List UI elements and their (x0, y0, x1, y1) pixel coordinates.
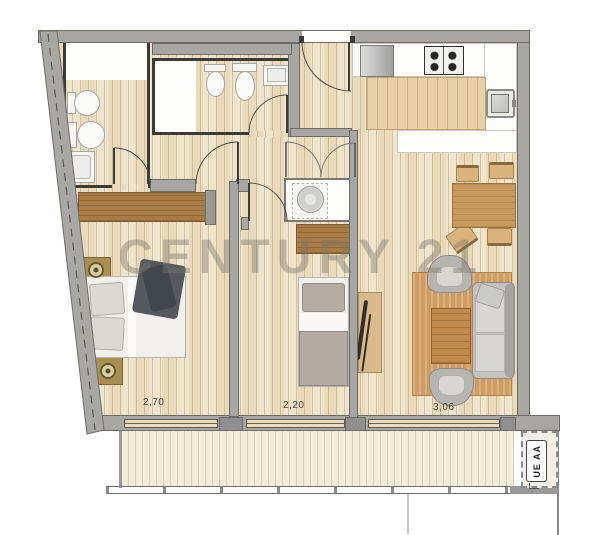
washing-machine-drum (297, 186, 324, 213)
coffee-table (431, 308, 471, 364)
sofa-cushion (475, 334, 505, 372)
exterior-wall-right (517, 42, 530, 417)
balcony-railing (106, 486, 558, 494)
boundary-line-bottom (407, 494, 409, 534)
bathroom1-door-opening (112, 184, 148, 190)
ac-unit-label: UE AA (532, 445, 542, 478)
wall-bedroom1-bedroom2-divider (229, 181, 239, 417)
bed-pillow (302, 283, 345, 312)
window-bedroom1 (124, 419, 218, 428)
wardrobe (78, 192, 206, 222)
bed-pillow (89, 282, 125, 316)
refrigerator-icon (360, 45, 394, 77)
floor-plan: UE AA 2,70 2,20 3,06 CENTURY 21 (0, 0, 603, 535)
ac-outdoor-unit-icon: UE AA (526, 440, 547, 482)
wall-hall-south (150, 179, 196, 192)
balcony-left-edge (119, 431, 122, 488)
table-lamp-icon (100, 363, 116, 379)
dining-table (452, 183, 516, 228)
armchair-seat (438, 375, 465, 396)
bathroom2-walls (152, 58, 292, 135)
dining-chair (456, 165, 479, 182)
wall-bathroom2-right (288, 43, 300, 137)
blanket (299, 331, 348, 386)
wall-post-bedroom2-door (241, 217, 249, 230)
structural-column (219, 417, 243, 431)
window-bedroom2 (246, 419, 345, 428)
dining-chair (487, 228, 512, 246)
dining-chair (489, 162, 514, 179)
kitchen-island (366, 77, 486, 130)
exterior-wall-top (38, 30, 530, 43)
bathroom1-walls (63, 40, 150, 188)
sofa-back (505, 284, 514, 377)
table-lamp-icon (88, 262, 104, 278)
structural-column (500, 417, 516, 431)
dimension-living: 3,06 (433, 402, 454, 413)
balcony-floor (121, 431, 514, 487)
bed-pillow (89, 316, 125, 351)
kitchen-faucet (512, 100, 516, 107)
stove-icon (424, 46, 464, 75)
ac-bracket-icon (529, 483, 539, 489)
wall-above-bathroom2 (152, 43, 292, 55)
structural-column (345, 417, 366, 431)
dimension-bedroom1: 2,70 (143, 397, 164, 408)
entry-door-post (350, 36, 355, 43)
century21-watermark: CENTURY 21 (118, 230, 484, 285)
wall-nook-north (290, 128, 352, 137)
kitchen-peninsula (397, 130, 517, 153)
bathroom2-door-opening (249, 131, 288, 137)
entry-door-opening (302, 31, 351, 42)
wardrobe-end-panel (205, 190, 216, 225)
sheet-fold (300, 313, 347, 333)
window-living (368, 419, 500, 428)
entry-door-post (299, 36, 304, 43)
dimension-bedroom2: 2,20 (283, 400, 304, 411)
kitchen-sink-bowl (491, 94, 509, 113)
